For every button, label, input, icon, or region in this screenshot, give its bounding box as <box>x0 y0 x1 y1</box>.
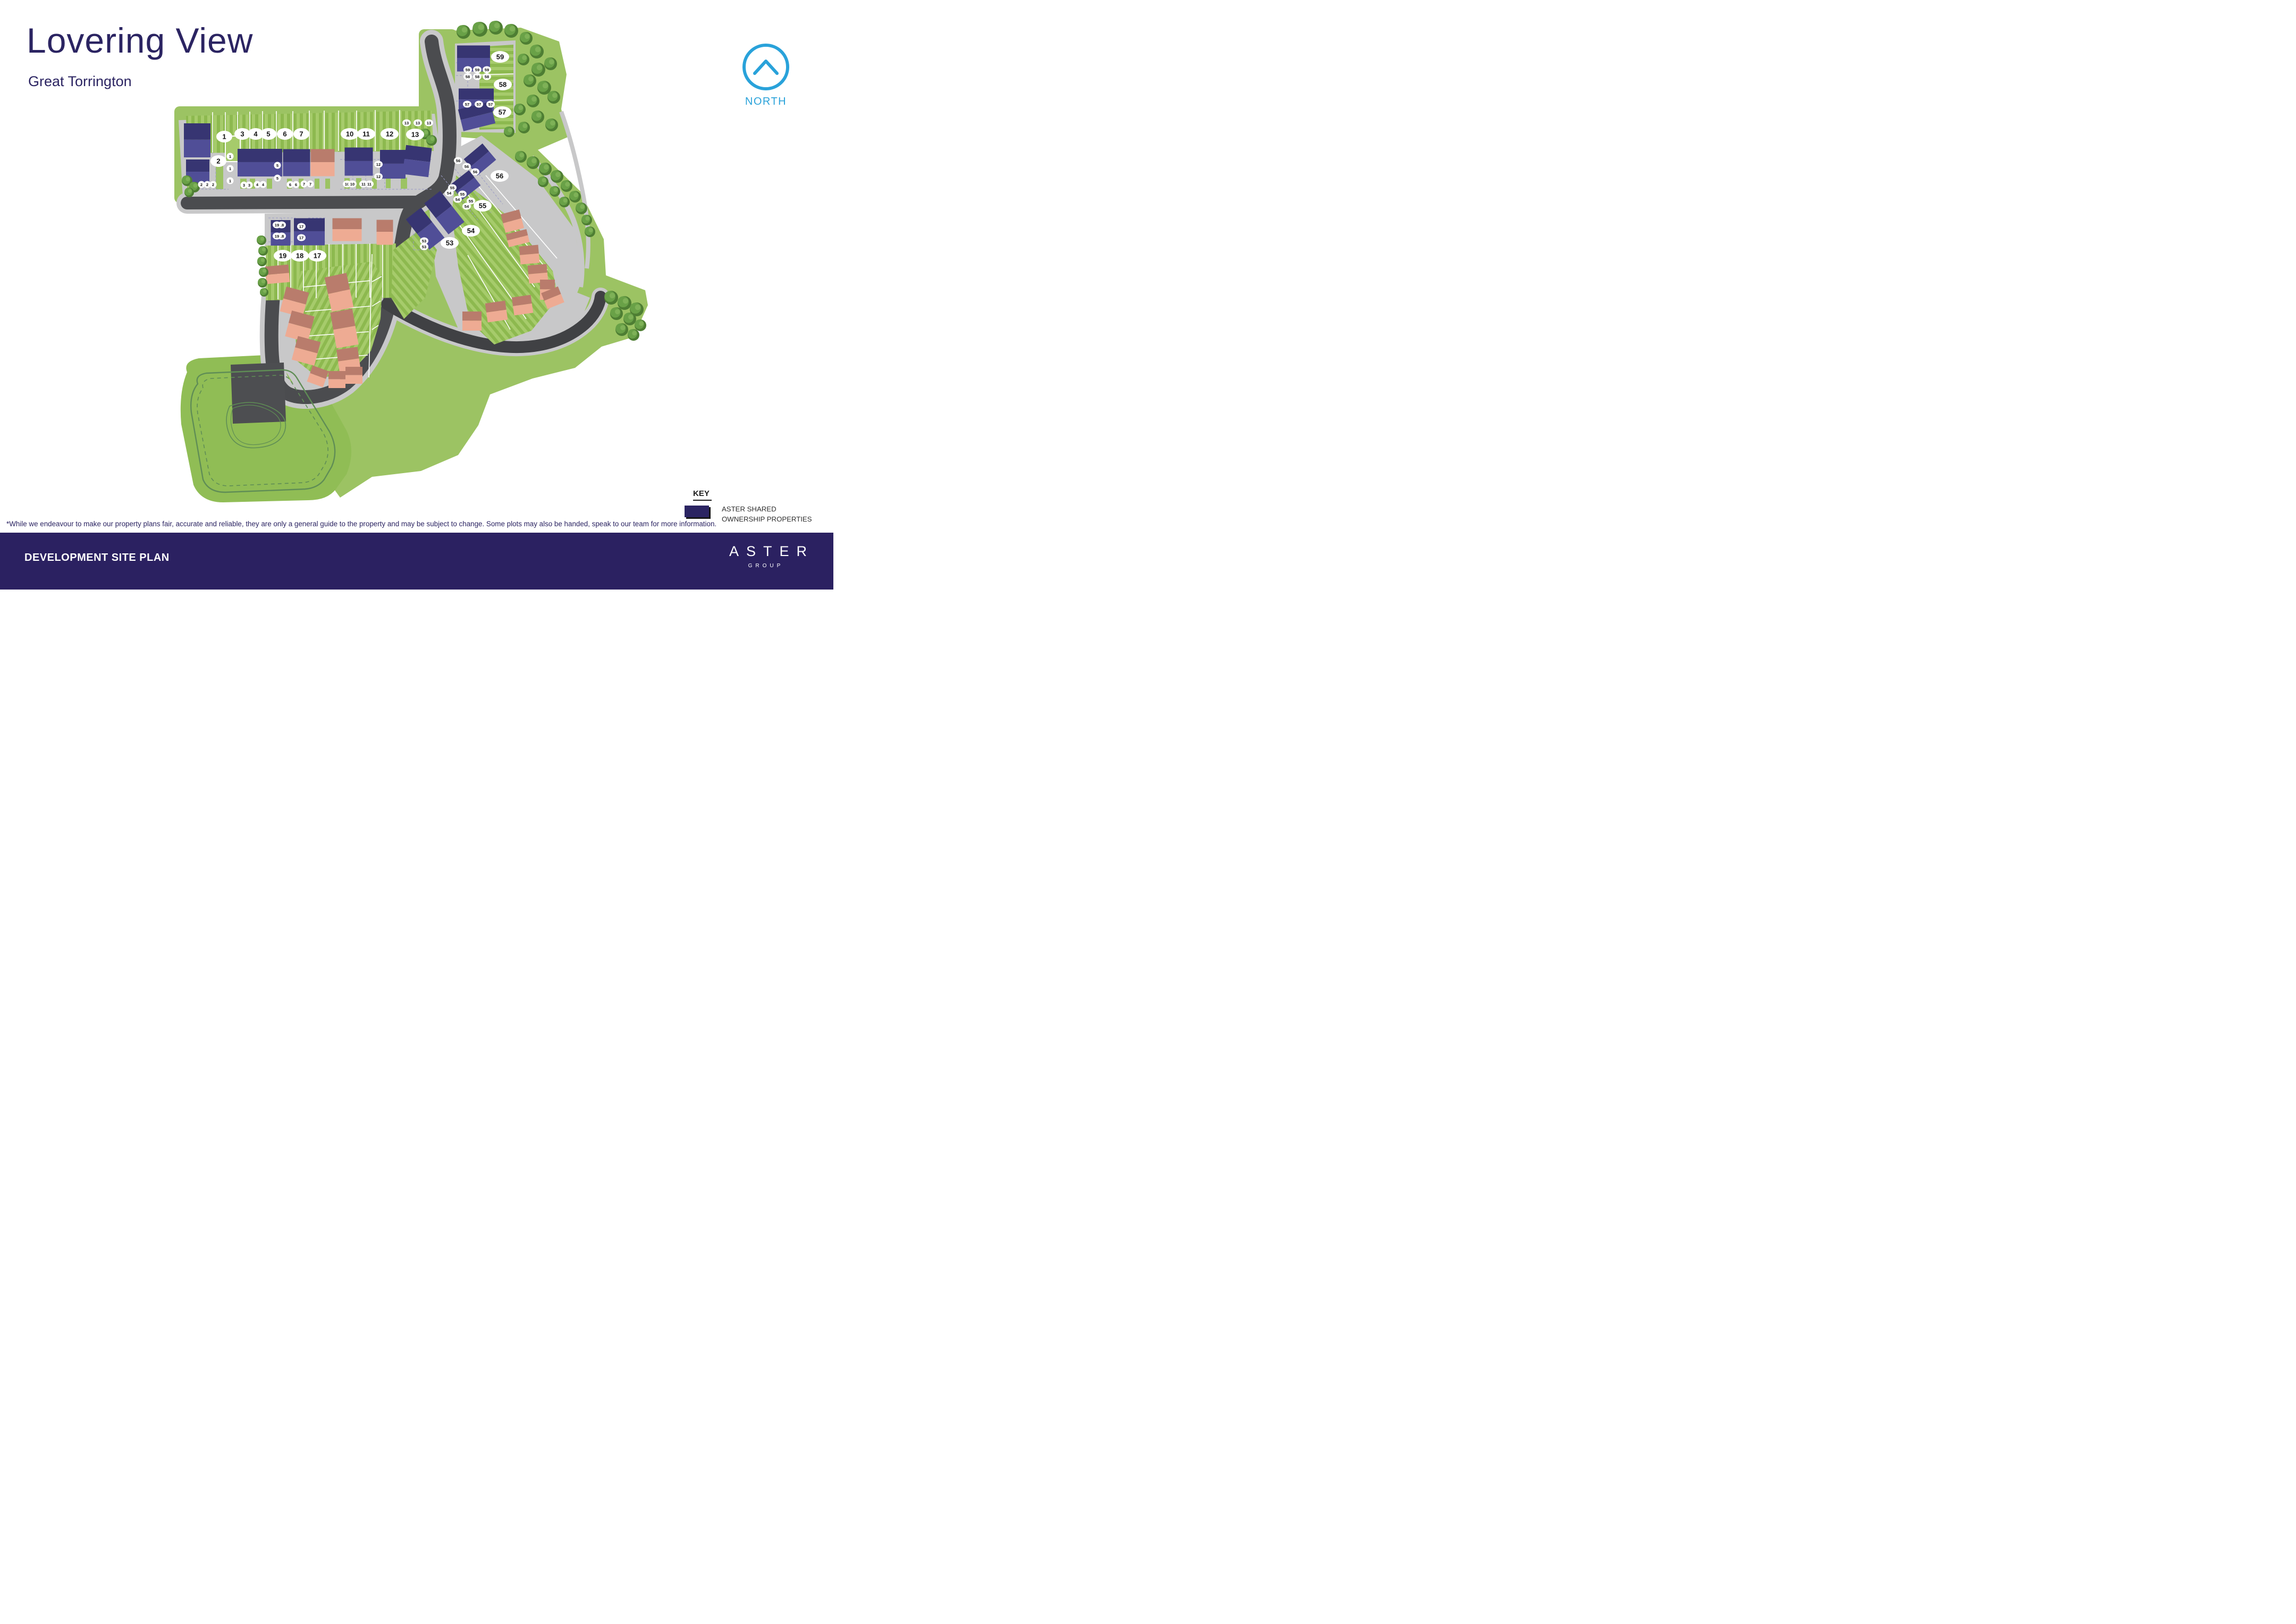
open-market-house <box>485 301 508 323</box>
svg-text:56: 56 <box>473 170 477 174</box>
svg-text:6: 6 <box>295 182 297 187</box>
plot-label: 6 <box>277 128 293 140</box>
tree-icon <box>550 186 560 197</box>
svg-text:3: 3 <box>243 183 245 188</box>
svg-text:13: 13 <box>416 121 420 125</box>
plot-label: 19 <box>274 250 292 262</box>
svg-text:5: 5 <box>266 130 270 138</box>
open-market-house <box>328 371 345 388</box>
svg-text:19: 19 <box>279 252 286 260</box>
svg-text:2: 2 <box>206 182 208 187</box>
parking-bay-label: 55 <box>458 191 467 198</box>
svg-text:13: 13 <box>411 131 419 139</box>
parking-bay-label: 5 <box>274 162 281 169</box>
tree-icon <box>615 323 628 336</box>
svg-text:2: 2 <box>212 182 214 187</box>
svg-text:55: 55 <box>450 186 455 190</box>
tree-icon <box>635 319 646 331</box>
svg-text:58: 58 <box>485 74 489 79</box>
development-site-plan-page: 1112223344556677101011111212131313171718… <box>0 0 833 590</box>
tree-icon <box>531 63 545 77</box>
svg-text:17: 17 <box>299 224 303 229</box>
tree-icon <box>258 278 267 288</box>
parking-bay-label: 13 <box>425 120 433 127</box>
parking-bay-label: 5 <box>274 175 281 182</box>
tree-icon <box>258 246 268 256</box>
tree-icon <box>545 119 558 131</box>
svg-text:12: 12 <box>376 174 381 179</box>
svg-text:6: 6 <box>283 130 286 138</box>
parking-bay-label: 57 <box>486 101 495 108</box>
tree-icon <box>581 215 592 225</box>
parking-bay-label: 2 <box>210 181 217 188</box>
plot-label: 1 <box>216 131 232 142</box>
svg-text:7: 7 <box>299 130 303 138</box>
shared-ownership-house <box>380 150 406 179</box>
tree-icon <box>504 24 518 38</box>
parking-bay-label: 7 <box>307 181 314 188</box>
open-market-house <box>377 220 393 245</box>
aster-group-logo: ASTER GROUP <box>722 543 807 569</box>
svg-text:19: 19 <box>275 234 279 239</box>
parking-bay-label: 56 <box>471 169 479 175</box>
tree-icon <box>604 291 618 305</box>
svg-text:3: 3 <box>248 183 250 188</box>
svg-text:13: 13 <box>404 121 409 125</box>
open-market-house <box>311 149 335 176</box>
parking-bay-label: 10 <box>348 181 357 188</box>
brand-name: ASTER <box>722 543 807 560</box>
plot-label: 53 <box>441 237 459 249</box>
parking-bay-label: 53 <box>420 243 428 250</box>
north-label: NORTH <box>737 96 795 108</box>
shared-ownership-house <box>402 145 432 178</box>
parking-bay-label: 11 <box>365 181 374 188</box>
plot-label: 56 <box>491 170 509 182</box>
north-circle <box>742 44 789 90</box>
tree-icon <box>504 127 514 137</box>
parking-bay-label: 13 <box>413 120 422 127</box>
tree-icon <box>457 25 470 39</box>
svg-text:17: 17 <box>314 252 321 260</box>
plot-label: 59 <box>491 51 509 63</box>
tree-icon <box>561 180 572 192</box>
svg-text:57: 57 <box>499 108 506 116</box>
svg-text:3: 3 <box>240 130 244 138</box>
disclaimer-text: *While we endeavour to make our property… <box>6 520 825 528</box>
svg-text:53: 53 <box>422 245 426 249</box>
svg-text:12: 12 <box>386 130 393 138</box>
open-market-house <box>333 218 362 241</box>
tree-icon <box>489 21 503 35</box>
tree-icon <box>551 170 563 183</box>
svg-text:57: 57 <box>488 102 493 107</box>
footer-bar: DEVELOPMENT SITE PLAN ASTER GROUP <box>0 533 833 590</box>
tree-icon <box>518 54 529 65</box>
svg-text:58: 58 <box>475 74 479 79</box>
parking-bay-label: 55 <box>448 184 457 191</box>
svg-text:18: 18 <box>296 252 303 260</box>
svg-text:10: 10 <box>346 130 353 138</box>
svg-text:55: 55 <box>479 202 486 210</box>
parking-bay-label: 4 <box>260 181 267 188</box>
parking-bay-label: 19 <box>273 222 281 229</box>
parking-bay-label: 17 <box>297 223 306 230</box>
svg-text:54: 54 <box>465 204 469 209</box>
svg-text:56: 56 <box>465 164 469 169</box>
plot-label: 55 <box>474 200 492 212</box>
svg-text:54: 54 <box>467 227 475 235</box>
svg-text:17: 17 <box>299 235 303 240</box>
tree-icon <box>628 329 639 341</box>
footer-title: DEVELOPMENT SITE PLAN <box>24 552 170 564</box>
svg-text:58: 58 <box>466 74 470 79</box>
svg-text:7: 7 <box>309 182 311 187</box>
svg-text:11: 11 <box>362 130 370 138</box>
plot-label: 57 <box>493 106 511 118</box>
open-market-house <box>345 367 362 384</box>
svg-text:10: 10 <box>350 182 354 187</box>
svg-text:6: 6 <box>289 182 291 187</box>
tree-icon <box>569 191 581 203</box>
svg-text:19: 19 <box>275 223 279 228</box>
open-market-house <box>462 312 482 331</box>
parking-bay-label: 56 <box>454 157 462 164</box>
parking-bay-label: 19 <box>273 233 281 240</box>
parking-bay-label: 12 <box>374 161 383 168</box>
svg-text:56: 56 <box>496 172 503 180</box>
open-market-house <box>519 245 540 264</box>
open-market-house <box>512 295 533 316</box>
parking-bay-label: 57 <box>463 101 471 108</box>
plot-label: 7 <box>293 128 309 140</box>
shared-ownership-house <box>283 149 310 176</box>
tree-icon <box>260 288 268 297</box>
parking-bay-label: 59 <box>483 66 491 73</box>
shared-ownership-house <box>345 148 373 176</box>
key-heading: KEY <box>693 489 712 501</box>
tree-icon <box>257 257 267 266</box>
shared-ownership-swatch <box>685 506 709 517</box>
brand-subtitle: GROUP <box>722 563 807 569</box>
plot-label: 13 <box>406 129 424 140</box>
parking-bay-label: 1 <box>227 178 234 184</box>
svg-text:54: 54 <box>455 197 460 202</box>
parking-bay-label: 12 <box>374 173 383 180</box>
svg-text:54: 54 <box>447 191 452 196</box>
parking-bay-label: 59 <box>473 66 482 73</box>
parking-bay-label: 59 <box>463 66 472 73</box>
svg-text:57: 57 <box>477 102 481 107</box>
parking-bay-label: 13 <box>402 120 411 127</box>
parking-bay-label: 7 <box>301 181 308 188</box>
parking-bay-label: 55 <box>467 198 475 205</box>
tree-icon <box>623 313 636 325</box>
svg-text:59: 59 <box>466 68 470 72</box>
parking-bay-label: 58 <box>473 73 482 80</box>
tree-icon <box>184 188 194 197</box>
plot-label: 12 <box>381 128 399 140</box>
svg-text:59: 59 <box>475 68 479 72</box>
tree-icon <box>547 91 560 104</box>
svg-text:4: 4 <box>254 130 258 138</box>
svg-text:56: 56 <box>456 158 460 163</box>
parking-bay-label: 3 <box>246 182 253 189</box>
tree-icon <box>472 22 487 37</box>
svg-text:53: 53 <box>422 239 426 243</box>
plot-label: 11 <box>357 128 375 140</box>
tree-icon <box>610 307 623 320</box>
parking-bay-label: 58 <box>463 73 472 80</box>
plot-label: 10 <box>341 128 359 140</box>
svg-text:13: 13 <box>427 121 431 125</box>
svg-text:2: 2 <box>216 157 220 165</box>
parking-bay-label: 1 <box>227 165 234 172</box>
tree-icon <box>515 151 527 163</box>
tree-icon <box>530 45 544 58</box>
parking-bay-label: 6 <box>293 181 300 188</box>
svg-text:1: 1 <box>222 133 226 141</box>
tree-icon <box>527 95 539 107</box>
page-title: Lovering View <box>27 20 253 61</box>
page-subtitle: Great Torrington <box>28 73 132 90</box>
tree-icon <box>539 163 552 175</box>
svg-text:55: 55 <box>469 199 474 204</box>
plot-label: 58 <box>494 79 512 90</box>
tree-icon <box>576 203 587 214</box>
svg-text:53: 53 <box>446 239 453 247</box>
shared-ownership-house <box>184 123 210 157</box>
parking-bay-label: 57 <box>475 101 483 108</box>
tree-icon <box>538 176 548 187</box>
plot-label: 18 <box>291 250 309 262</box>
plot-label: 2 <box>210 155 226 167</box>
tree-icon <box>618 296 631 310</box>
svg-text:12: 12 <box>376 162 381 167</box>
tree-icon <box>585 226 595 237</box>
chevron-up-icon <box>752 58 780 76</box>
parking-bay-label: 17 <box>297 234 306 241</box>
svg-text:11: 11 <box>367 182 372 187</box>
svg-text:59: 59 <box>496 53 504 61</box>
tree-icon <box>559 197 570 207</box>
tree-icon <box>518 122 530 133</box>
svg-text:7: 7 <box>303 182 305 187</box>
parking-bay-label: 1 <box>227 153 234 160</box>
tree-icon <box>520 32 533 45</box>
open-market-house <box>265 265 290 284</box>
north-indicator: NORTH <box>737 44 795 108</box>
map-key: KEY ASTER SHARED OWNERSHIP PROPERTIES <box>685 489 817 524</box>
plot-label: 17 <box>308 250 326 262</box>
plot-label: 54 <box>462 225 480 237</box>
parking-bay-label: 58 <box>483 73 491 80</box>
tree-icon <box>426 135 437 146</box>
shared-ownership-house <box>294 218 325 246</box>
svg-text:55: 55 <box>460 192 465 197</box>
tree-icon <box>257 235 266 245</box>
tree-icon <box>524 74 536 87</box>
tree-icon <box>544 57 557 70</box>
plot-label: 5 <box>260 128 276 140</box>
parking-bay-label: 56 <box>462 163 471 170</box>
svg-text:58: 58 <box>499 81 507 89</box>
tree-icon <box>514 104 526 115</box>
svg-text:57: 57 <box>465 102 469 107</box>
svg-text:2: 2 <box>200 182 202 187</box>
tree-icon <box>531 111 544 123</box>
svg-text:59: 59 <box>485 68 489 72</box>
tree-icon <box>259 267 268 277</box>
tree-icon <box>527 156 539 169</box>
